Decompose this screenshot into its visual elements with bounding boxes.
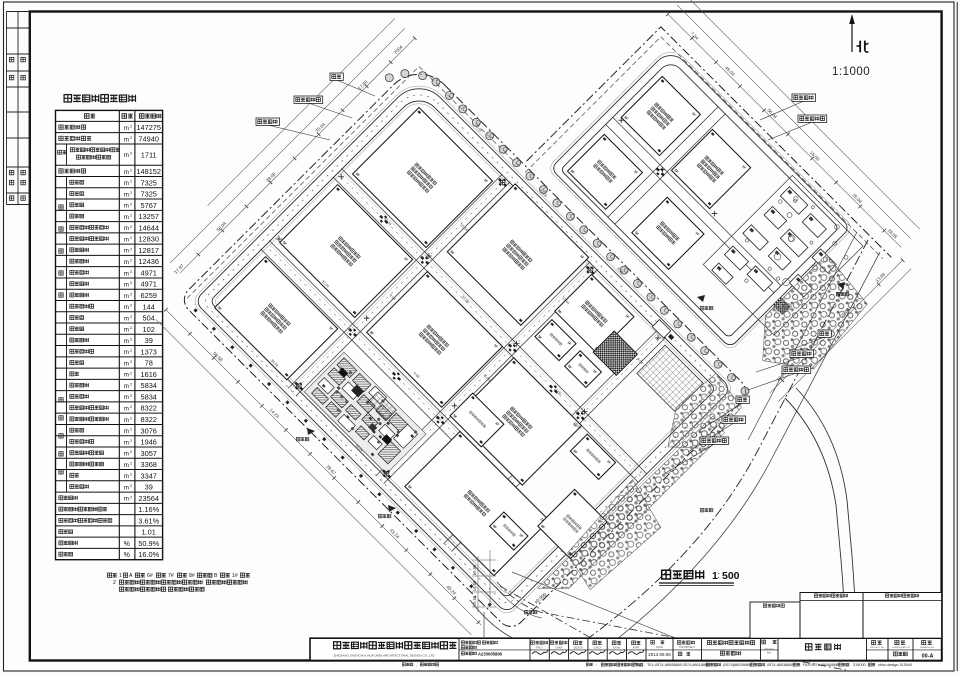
svg-text:m: m (124, 372, 129, 379)
svg-text:2: 2 (130, 136, 132, 140)
svg-text:m: m (124, 136, 129, 143)
svg-text:39: 39 (145, 336, 153, 345)
svg-text:16.58: 16.58 (472, 580, 477, 591)
svg-text:16.0%: 16.0% (138, 550, 159, 559)
svg-text:7325: 7325 (140, 190, 156, 199)
svg-text:23564: 23564 (138, 494, 159, 503)
svg-text:2: 2 (130, 247, 132, 251)
svg-text:2: 2 (130, 191, 132, 195)
svg-text:m: m (124, 406, 129, 413)
svg-text:m: m (124, 180, 129, 187)
svg-text:0574-88038888: 0574-88038888 (767, 663, 794, 667)
svg-text:2: 2 (130, 461, 132, 465)
svg-text:2: 2 (130, 337, 132, 341)
svg-text:A: A (129, 573, 133, 579)
svg-text:TEL:0574-88008888 0574-880188: TEL:0574-88008888 0574-88018888 (647, 663, 709, 667)
svg-text:2: 2 (130, 152, 132, 156)
svg-text:3368: 3368 (140, 460, 156, 469)
svg-text:m: m (124, 152, 129, 159)
svg-text:1373: 1373 (140, 347, 156, 356)
svg-text:FAX:0574-88048888: FAX:0574-88048888 (803, 663, 838, 667)
svg-text:m: m (124, 417, 129, 424)
svg-text:2: 2 (130, 168, 132, 172)
svg-text:APPR.: APPR. (633, 646, 641, 649)
svg-text:00-A: 00-A (922, 653, 934, 659)
svg-text:m: m (124, 259, 129, 266)
svg-text:6#: 6# (147, 573, 153, 579)
svg-text:2: 2 (130, 371, 132, 375)
svg-text:CHECK: CHECK (593, 646, 602, 649)
svg-text:EXAM.: EXAM. (613, 646, 621, 649)
svg-text:1946: 1946 (140, 438, 156, 447)
svg-text:1#: 1# (232, 573, 238, 579)
svg-text:10.86: 10.86 (472, 564, 477, 575)
svg-text:504: 504 (143, 314, 155, 323)
svg-text:2: 2 (130, 281, 132, 285)
svg-text:2: 2 (130, 304, 132, 308)
svg-text::: : (596, 663, 597, 667)
svg-text:315000: 315000 (853, 663, 866, 667)
svg-text:m: m (124, 236, 129, 243)
svg-text:5834: 5834 (140, 392, 156, 401)
svg-text:A233005896: A233005896 (478, 651, 503, 656)
svg-text:2: 2 (130, 439, 132, 443)
svg-text:DESIGN: DESIGN (574, 646, 583, 649)
svg-text:1:1000: 1:1000 (832, 66, 870, 78)
svg-text:m: m (124, 191, 129, 198)
svg-text::: : (718, 570, 721, 580)
svg-text:m: m (124, 349, 129, 356)
svg-text:m: m (124, 451, 129, 458)
svg-text:15.68: 15.68 (472, 595, 477, 606)
svg-text:144: 144 (143, 302, 155, 311)
svg-text:m: m (124, 360, 129, 367)
svg-text:title: title (767, 651, 772, 655)
svg-text:147275: 147275 (136, 123, 161, 132)
svg-text:m: m (124, 462, 129, 469)
svg-text:,: , (416, 663, 417, 667)
svg-text:2: 2 (130, 214, 132, 218)
svg-text:1.16%: 1.16% (138, 505, 159, 514)
svg-text:14644: 14644 (138, 223, 159, 232)
svg-text:2: 2 (130, 473, 132, 477)
svg-text:4971: 4971 (140, 268, 156, 277)
svg-text:2: 2 (130, 495, 132, 499)
svg-text:3057: 3057 (140, 449, 156, 458)
svg-text:DRAWING No.: DRAWING No. (920, 646, 935, 649)
svg-text:2: 2 (113, 580, 116, 586)
svg-text:2: 2 (130, 383, 132, 387)
svg-text:1: 1 (119, 573, 122, 579)
svg-text:2: 2 (130, 202, 132, 206)
svg-text:2: 2 (130, 484, 132, 488)
svg-text:m: m (124, 169, 129, 176)
svg-text:50.9%: 50.9% (138, 539, 159, 548)
svg-text:1.01: 1.01 (142, 528, 156, 537)
svg-text:13257: 13257 (138, 212, 159, 221)
svg-text:CHIEF: CHIEF (555, 646, 563, 649)
svg-text:m: m (124, 315, 129, 322)
svg-text:8322: 8322 (140, 404, 156, 413)
svg-text:m: m (124, 473, 129, 480)
svg-text:DATE: DATE (656, 645, 663, 649)
svg-text:500: 500 (722, 570, 740, 582)
svg-text:2: 2 (130, 125, 132, 129)
svg-text:CLASSIFICATION: CLASSIFICATION (892, 646, 910, 649)
svg-text:2: 2 (130, 326, 132, 330)
svg-text:2: 2 (130, 428, 132, 432)
svg-text:2: 2 (130, 270, 132, 274)
svg-text:m: m (124, 383, 129, 390)
svg-text:(0574)88028888: (0574)88028888 (723, 663, 751, 667)
svg-text:m: m (124, 394, 129, 401)
svg-text:102: 102 (143, 325, 155, 334)
svg-text:2: 2 (130, 450, 132, 454)
svg-text:m: m (124, 293, 129, 300)
svg-text:7#: 7# (168, 573, 174, 579)
svg-text:%: % (124, 541, 130, 548)
svg-text:2: 2 (130, 236, 132, 240)
svg-text:THE PROJECT: THE PROJECT (679, 646, 696, 649)
svg-text:m: m (124, 338, 129, 345)
svg-text:m: m (124, 304, 129, 311)
svg-text:m: m (124, 248, 129, 255)
svg-text:3.61%: 3.61% (138, 516, 159, 525)
svg-text:2: 2 (130, 416, 132, 420)
svg-text:m: m (124, 439, 129, 446)
svg-text:2: 2 (130, 349, 132, 353)
svg-text:PROJ.: PROJ. (536, 646, 543, 649)
svg-text:PROJECT No.: PROJECT No. (870, 647, 885, 649)
svg-text:12436: 12436 (138, 257, 159, 266)
svg-text:%: % (124, 552, 130, 559)
svg-text:8#: 8# (189, 573, 195, 579)
svg-text:4971: 4971 (140, 280, 156, 289)
svg-text:m: m (124, 484, 129, 491)
svg-text:2: 2 (130, 225, 132, 229)
svg-text:6259: 6259 (140, 291, 156, 300)
svg-text:8322: 8322 (140, 415, 156, 424)
svg-text:2: 2 (130, 259, 132, 263)
svg-text:1616: 1616 (140, 370, 156, 379)
svg-text:m: m (124, 428, 129, 435)
svg-text:m: m (124, 225, 129, 232)
svg-text:3076: 3076 (140, 426, 156, 435)
svg-text:78: 78 (145, 359, 153, 368)
svg-text:12817: 12817 (138, 246, 159, 255)
svg-text:2: 2 (130, 360, 132, 364)
svg-text:m: m (124, 282, 129, 289)
svg-text:7325: 7325 (140, 178, 156, 187)
svg-text:m: m (124, 270, 129, 277)
svg-text:2: 2 (130, 405, 132, 409)
svg-text:2: 2 (130, 180, 132, 184)
svg-text:2: 2 (130, 394, 132, 398)
svg-text:148152: 148152 (136, 167, 161, 176)
svg-text:12830: 12830 (138, 235, 159, 244)
svg-text:2: 2 (130, 292, 132, 296)
svg-text:5834: 5834 (140, 381, 156, 390)
svg-text:5767: 5767 (140, 201, 156, 210)
svg-text:74940: 74940 (138, 134, 159, 143)
svg-text:39: 39 (145, 483, 153, 492)
svg-text:m: m (124, 125, 129, 132)
svg-text:m: m (124, 496, 129, 503)
svg-text:2: 2 (130, 315, 132, 319)
svg-text:m: m (124, 203, 129, 210)
svg-text:ZHEJIANG ZHONGHUI HUACHEN ARCH: ZHEJIANG ZHONGHUI HUACHEN ARCHITECTURAL … (334, 654, 436, 658)
svg-text:zhhc-design 315040: zhhc-design 315040 (878, 663, 912, 667)
svg-text:3347: 3347 (140, 471, 156, 480)
svg-text:B: B (214, 573, 218, 579)
svg-text:m: m (124, 327, 129, 334)
svg-text:2014.09.06: 2014.09.06 (648, 652, 671, 657)
svg-text:1711: 1711 (141, 150, 157, 159)
svg-text:m: m (124, 214, 129, 221)
